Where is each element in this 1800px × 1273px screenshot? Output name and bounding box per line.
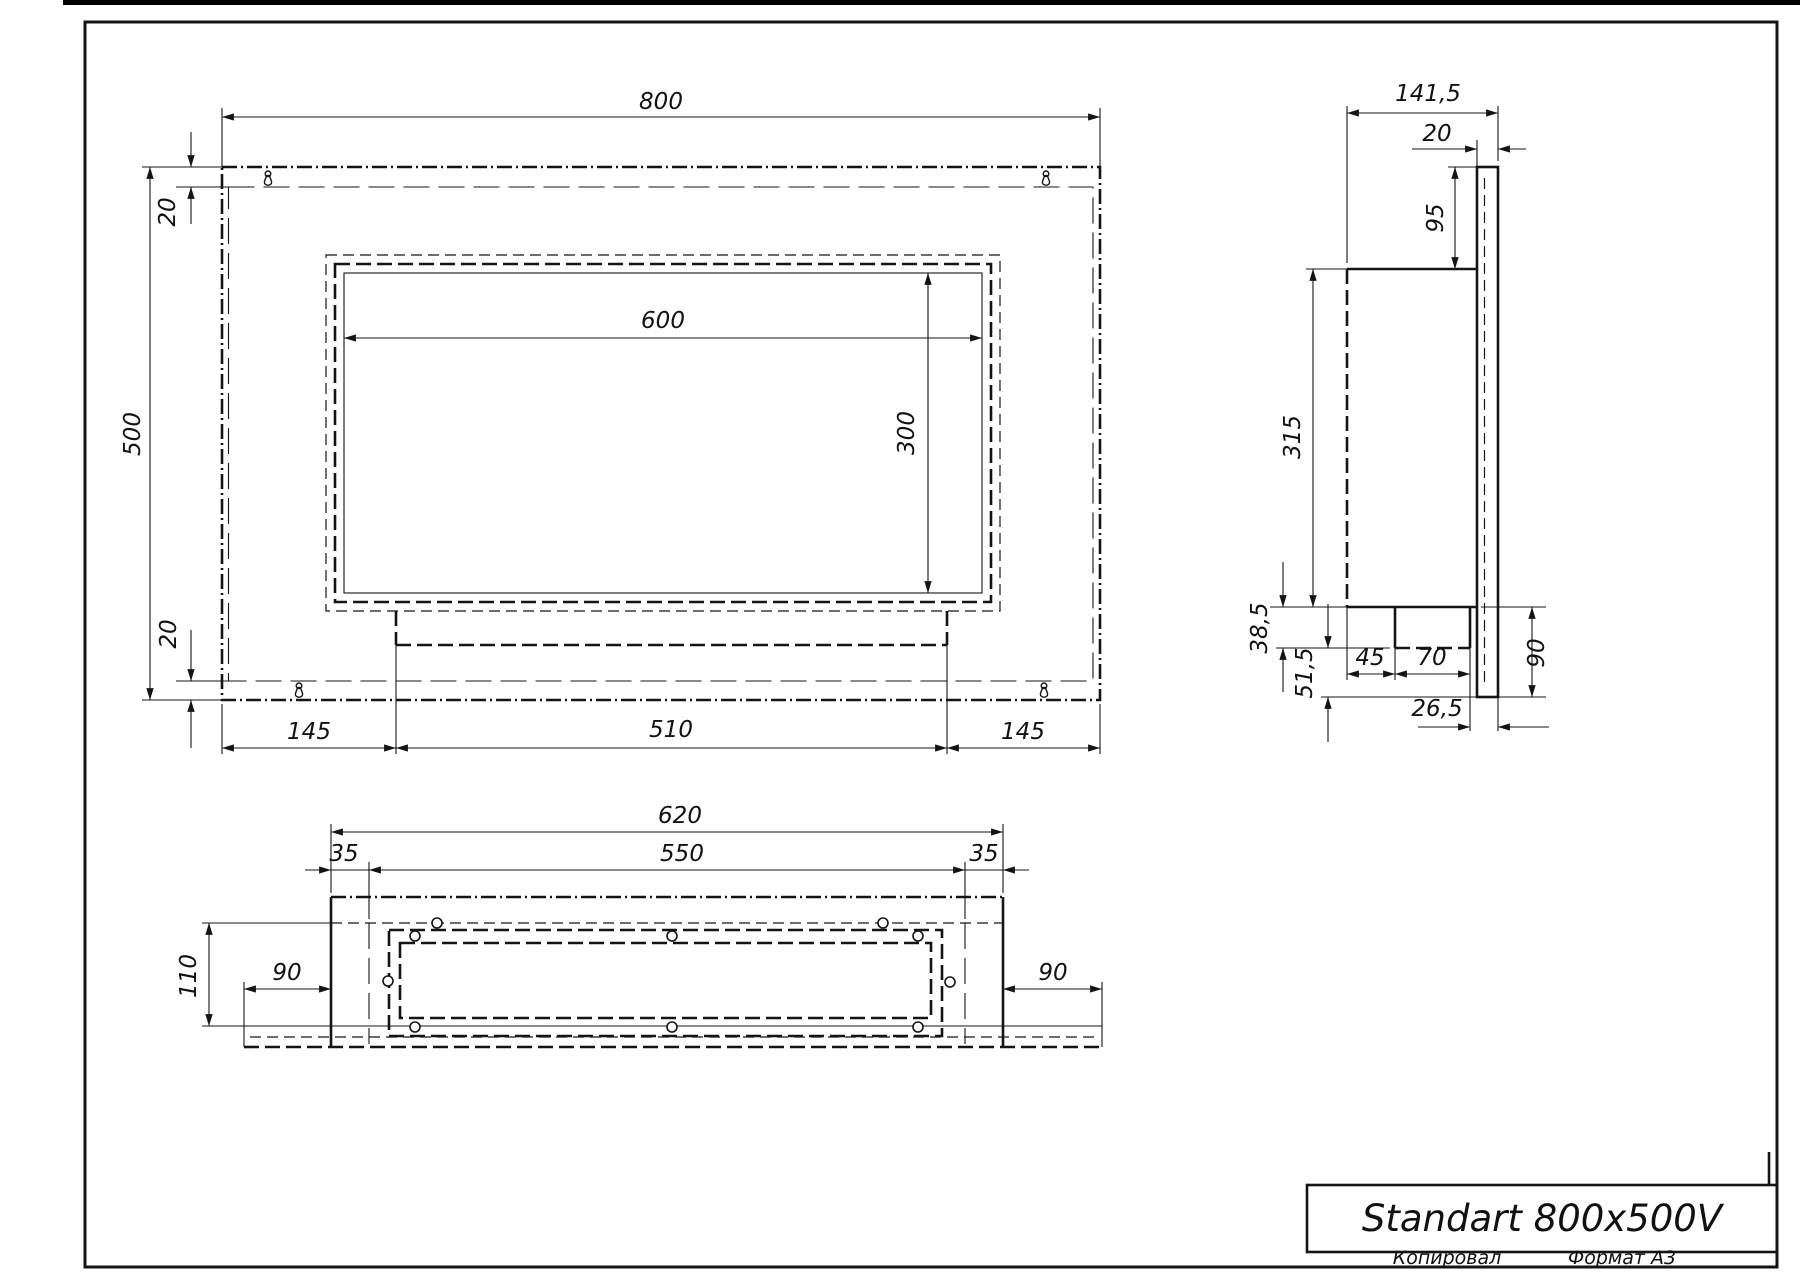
dim-wing-left: 90: [272, 960, 301, 986]
sheet-top-edge: [63, 0, 1800, 5]
screw-hole: [945, 977, 955, 987]
front-view-outline: [222, 167, 1100, 700]
dim-plate-below-body: 90: [1524, 638, 1550, 667]
bottom-view-burner-tray: [389, 930, 942, 1036]
technical-drawing: 800 500 20 20 600 300: [0, 0, 1800, 1273]
copied-by-label: Копировал: [1393, 1247, 1502, 1269]
dim-bottom-right: 145: [1001, 719, 1045, 745]
side-view-body: [1347, 269, 1477, 607]
side-view-lip: [1395, 607, 1470, 648]
dim-bottom-overall: 620: [658, 803, 702, 829]
front-view-burner-lip: [396, 611, 947, 645]
screw-hole: [383, 976, 393, 986]
dim-flange-width: 550: [660, 841, 704, 867]
drawing-title: Standart 800x500V: [1362, 1197, 1725, 1240]
dim-margin-left: 35: [329, 841, 358, 867]
screw-hole: [410, 1022, 420, 1032]
screw-hole: [667, 931, 677, 941]
dim-lip-setback: 45: [1355, 645, 1384, 671]
keyhole-slot-icon: [295, 683, 302, 697]
dim-plate-thickness: 20: [1422, 121, 1451, 147]
dim-top-offset: 95: [1423, 203, 1449, 232]
dim-front-top-inset: 20: [155, 197, 181, 226]
keyhole-slot-icon: [1042, 171, 1049, 185]
dim-bottom-center: 510: [649, 717, 693, 743]
front-view: 800 500 20 20 600 300: [120, 89, 1100, 754]
title-block: Standart 800x500V Копировал Формат А3: [1307, 1152, 1777, 1269]
side-view-dimensions: 141,5 20 95 315 38,5 51,5: [1247, 81, 1550, 742]
dim-front-height: 500: [120, 412, 146, 456]
screw-hole: [410, 931, 420, 941]
dim-bottom-depth: 110: [176, 954, 202, 998]
format-label: Формат А3: [1568, 1247, 1676, 1269]
dim-side-depth: 141,5: [1395, 81, 1461, 107]
dim-bottom-left: 145: [287, 719, 331, 745]
screw-hole: [913, 931, 923, 941]
dim-front-bottom-inset: 20: [156, 619, 182, 648]
screw-hole: [432, 918, 442, 928]
screw-hole: [878, 918, 888, 928]
dim-lip-depth: 70: [1417, 645, 1446, 671]
keyhole-slot-icon: [1040, 683, 1047, 697]
dim-below-lip: 51,5: [1292, 647, 1318, 698]
front-view-dimensions: 800 500 20 20 600 300: [120, 89, 1100, 754]
dim-wing-right: 90: [1038, 960, 1067, 986]
screw-hole: [913, 1022, 923, 1032]
side-view: 141,5 20 95 315 38,5 51,5: [1247, 81, 1550, 742]
drawing-sheet: 800 500 20 20 600 300: [0, 0, 1800, 1273]
dim-lip-drop: 38,5: [1247, 602, 1273, 653]
bottom-view: 620 35 550 35 110 90 90: [176, 803, 1102, 1047]
dim-opening-width: 600: [641, 308, 685, 334]
dim-front-width: 800: [639, 89, 683, 115]
dim-back-gap: 26,5: [1411, 696, 1462, 722]
keyhole-slots: [264, 171, 1049, 697]
dim-body-height: 315: [1280, 415, 1306, 459]
burner-screw-holes: [383, 918, 955, 1032]
bottom-view-dimensions: 620 35 550 35 110 90 90: [176, 803, 1102, 1026]
side-view-back-plate: [1477, 167, 1498, 697]
keyhole-slot-icon: [264, 171, 271, 185]
dim-margin-right: 35: [969, 841, 998, 867]
dim-opening-height: 300: [894, 411, 920, 455]
screw-hole: [667, 1022, 677, 1032]
